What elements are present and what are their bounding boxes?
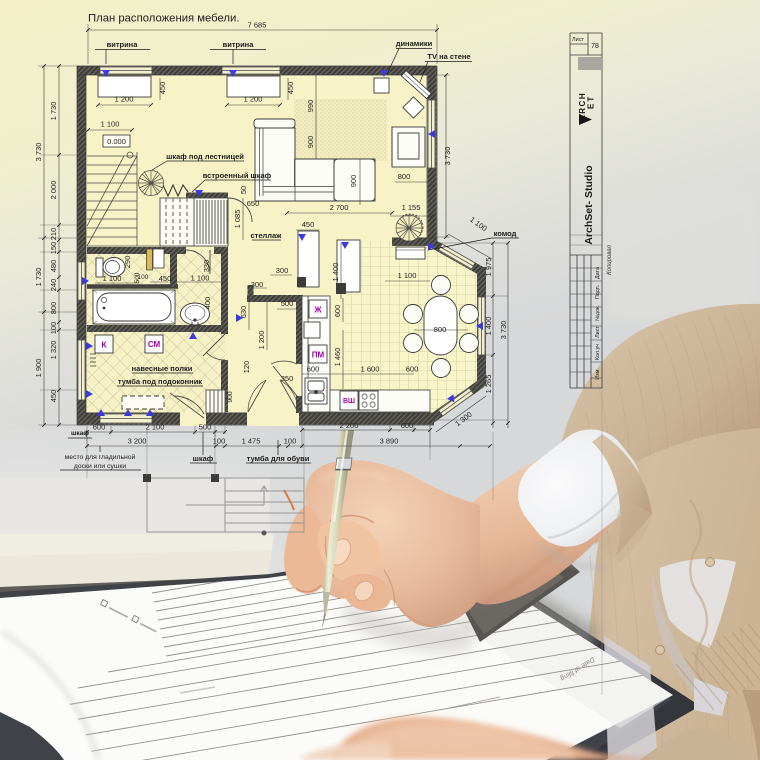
svg-text:500: 500	[134, 272, 141, 283]
svg-text:ET: ET	[587, 95, 596, 109]
svg-text:78: 78	[591, 43, 599, 50]
svg-text:1 460: 1 460	[333, 348, 342, 367]
svg-text:100: 100	[284, 437, 297, 446]
svg-text:800: 800	[398, 172, 411, 181]
svg-text:450: 450	[158, 82, 167, 95]
svg-text:1 400: 1 400	[484, 317, 493, 336]
svg-text:600: 600	[401, 421, 414, 430]
svg-text:210: 210	[49, 228, 58, 241]
svg-text:600: 600	[406, 365, 419, 374]
svg-text:900: 900	[349, 175, 358, 188]
svg-text:ВШ: ВШ	[343, 398, 355, 405]
svg-text:630: 630	[239, 306, 248, 319]
svg-text:доски или сушки: доски или сушки	[74, 463, 126, 470]
svg-text:500: 500	[199, 423, 212, 432]
svg-text:1 730: 1 730	[49, 102, 58, 121]
svg-text:450: 450	[159, 274, 172, 283]
svg-text:300: 300	[276, 266, 289, 275]
svg-text:600: 600	[333, 305, 342, 318]
svg-text:150: 150	[49, 242, 58, 255]
svg-text:1 085: 1 085	[233, 210, 242, 229]
svg-text:шкаф под лестницей: шкаф под лестницей	[166, 152, 244, 161]
svg-text:800: 800	[434, 325, 447, 334]
svg-text:3 200: 3 200	[128, 437, 147, 446]
svg-text:шкаф: шкаф	[193, 454, 214, 463]
svg-text:Лист: Лист	[595, 326, 601, 338]
svg-text:990: 990	[306, 100, 315, 113]
svg-text:240: 240	[49, 279, 58, 292]
svg-text:3 730: 3 730	[34, 143, 43, 162]
svg-text:встроенный шкаф: встроенный шкаф	[203, 171, 272, 180]
svg-text:стеллаж: стеллаж	[250, 231, 282, 240]
svg-text:1 600: 1 600	[361, 365, 380, 374]
svg-text:место для гладильной: место для гладильной	[65, 453, 136, 461]
svg-text:К: К	[101, 340, 107, 350]
svg-text:Дата: Дата	[595, 267, 601, 279]
svg-text:1 975: 1 975	[484, 258, 493, 277]
svg-text:1 320: 1 320	[49, 341, 58, 360]
svg-text:300: 300	[251, 280, 264, 289]
svg-text:тумба под подоконник: тумба под подоконник	[118, 377, 202, 386]
svg-text:7 685: 7 685	[248, 21, 267, 30]
svg-text:2 700: 2 700	[330, 203, 349, 212]
svg-text:0.000: 0.000	[107, 137, 126, 146]
svg-text:1 100: 1 100	[398, 271, 417, 280]
svg-text:450: 450	[49, 390, 58, 403]
svg-text:350: 350	[281, 374, 294, 383]
svg-text:450: 450	[302, 220, 315, 229]
svg-text:План расположения мебели.: План расположения мебели.	[88, 13, 239, 25]
svg-text:1 400: 1 400	[331, 263, 340, 282]
svg-text:800: 800	[49, 302, 58, 315]
svg-text:Лист: Лист	[572, 37, 584, 43]
svg-text:2 200: 2 200	[340, 421, 359, 430]
svg-text:1 155: 1 155	[402, 203, 421, 212]
svg-text:480: 480	[49, 260, 58, 273]
svg-text:витрина: витрина	[223, 40, 255, 49]
svg-text:2 000: 2 000	[49, 181, 58, 200]
svg-text:витрина: витрина	[107, 40, 139, 49]
svg-text:СМ: СМ	[148, 340, 161, 349]
svg-text:900: 900	[306, 136, 315, 149]
svg-text:Подп.: Подп.	[595, 285, 601, 299]
svg-text:навесные полки: навесные полки	[132, 364, 193, 373]
svg-text:50: 50	[239, 186, 248, 194]
svg-text:600: 600	[93, 423, 106, 432]
svg-text:400: 400	[203, 297, 212, 310]
svg-text:100: 100	[213, 437, 226, 446]
svg-text:динамики: динамики	[396, 39, 433, 48]
svg-text:ПМ: ПМ	[312, 351, 325, 360]
svg-text:№док.: №док.	[595, 305, 601, 321]
svg-text:TV на стене: TV на стене	[427, 52, 470, 61]
svg-text:комод: комод	[494, 229, 517, 238]
svg-text:1 475: 1 475	[242, 437, 261, 446]
svg-text:1 730: 1 730	[34, 268, 43, 287]
svg-text:450: 450	[286, 82, 295, 95]
svg-text:3 730: 3 730	[443, 147, 452, 166]
svg-text:900: 900	[227, 391, 234, 403]
svg-text:1 900: 1 900	[34, 359, 43, 378]
svg-text:3 730: 3 730	[499, 321, 508, 340]
svg-text:1 100: 1 100	[101, 120, 120, 129]
svg-text:Изм.: Изм.	[595, 368, 601, 380]
svg-text:Кол.уч: Кол.уч	[595, 344, 601, 360]
svg-text:600: 600	[307, 365, 320, 374]
svg-text:1 265: 1 265	[484, 375, 493, 394]
svg-text:1 100: 1 100	[103, 274, 122, 283]
svg-text:100: 100	[49, 322, 58, 335]
svg-text:500: 500	[281, 299, 294, 308]
svg-text:тумба для обуви: тумба для обуви	[247, 454, 310, 463]
svg-text:290: 290	[123, 256, 132, 269]
svg-text:3 890: 3 890	[380, 437, 399, 446]
svg-text:650: 650	[247, 199, 260, 208]
svg-text:Ж: Ж	[313, 306, 322, 315]
svg-text:2 100: 2 100	[146, 423, 165, 432]
svg-text:1 200: 1 200	[244, 95, 263, 104]
svg-text:ArchSet- Studio: ArchSet- Studio	[583, 165, 595, 244]
svg-text:шкаф: шкаф	[71, 430, 89, 437]
svg-text:Копировал: Копировал	[607, 244, 613, 274]
svg-text:1 200: 1 200	[115, 95, 134, 104]
svg-text:120: 120	[242, 361, 251, 374]
svg-text:330: 330	[202, 260, 211, 273]
svg-text:1 200: 1 200	[257, 331, 266, 350]
svg-text:1 100: 1 100	[191, 274, 210, 283]
